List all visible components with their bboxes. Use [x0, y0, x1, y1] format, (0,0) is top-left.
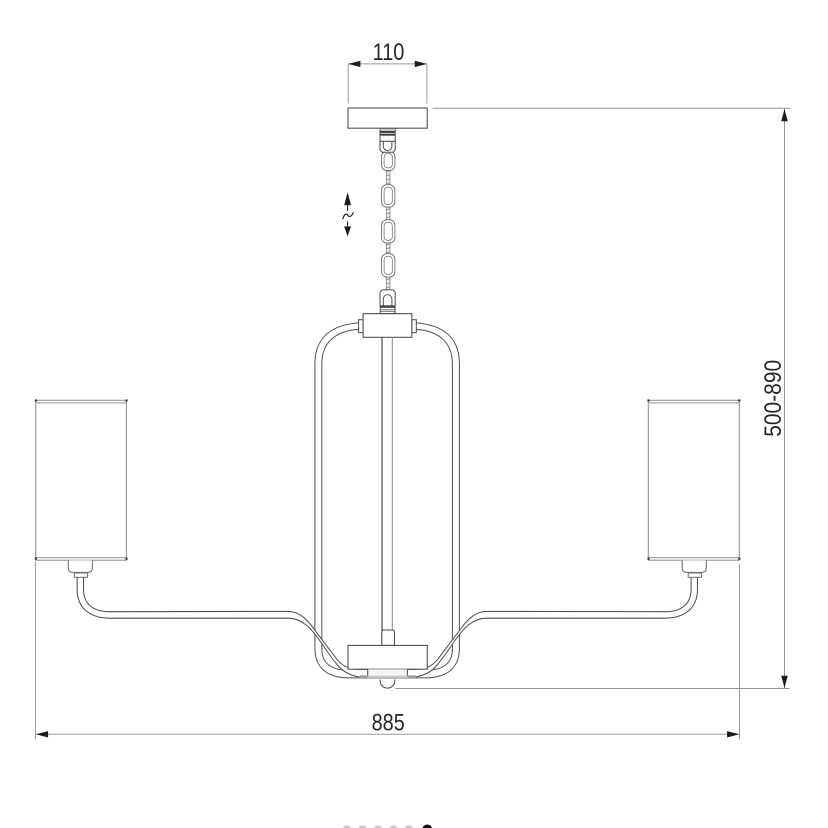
svg-text:500-890: 500-890 — [760, 360, 786, 437]
svg-text:110: 110 — [373, 38, 405, 65]
svg-text:885: 885 — [372, 709, 405, 736]
